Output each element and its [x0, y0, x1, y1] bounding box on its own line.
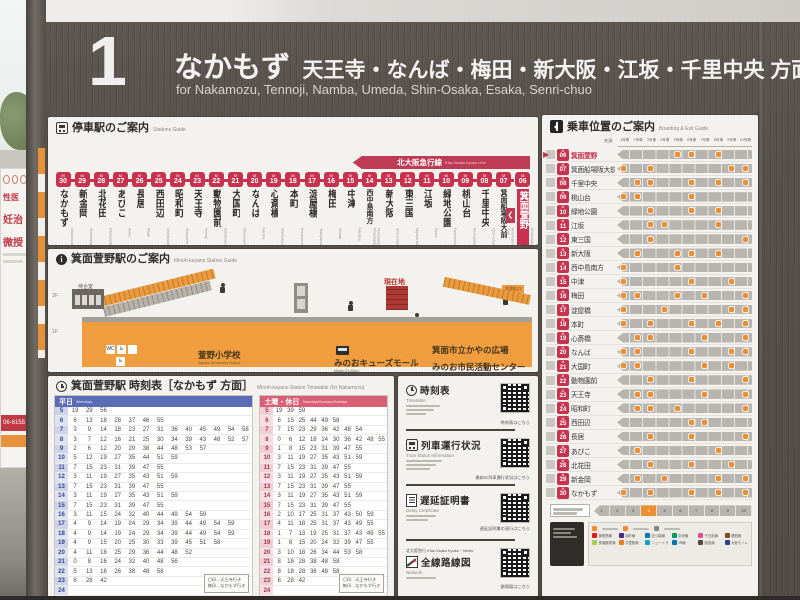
train-car-bar	[617, 305, 752, 315]
boarding-row: ▶M28北花田	[546, 458, 752, 472]
exit-marker	[621, 363, 626, 368]
exit-marker	[635, 251, 640, 256]
minute-cell: 59	[167, 492, 181, 500]
station-number-badge: M22	[557, 374, 569, 386]
ceiling-band	[0, 0, 800, 22]
boarding-row: ▶M17淀屋橋	[546, 303, 752, 317]
minute-cell: 36	[319, 426, 330, 434]
minute-cell: 42	[296, 577, 307, 585]
station-number-badge: M23	[557, 388, 569, 400]
route-station-abiko: M27あびこAbiko	[111, 172, 129, 245]
minute-cell: 58	[330, 416, 341, 424]
minute-cell: 13	[296, 530, 307, 538]
station-number-badge: M29	[75, 172, 90, 187]
minute-cell: 18	[285, 567, 296, 575]
exit-marker	[689, 349, 694, 354]
timetable-row: 918152331394755	[260, 445, 387, 454]
legend-line-阪急線: 阪急線	[698, 540, 722, 545]
station-name: なかもず	[58, 189, 68, 245]
station-number-badge: M26	[132, 172, 147, 187]
minute-cell: 24	[111, 511, 125, 519]
minute-cell: 9	[82, 530, 96, 538]
minute-cell: 36	[342, 435, 353, 443]
minute-cell: 47	[139, 501, 153, 509]
route-station-namba: M20なんばNamba	[246, 172, 264, 245]
station-number-badge: M11	[557, 219, 569, 231]
clock-icon	[56, 381, 67, 392]
minute-cell: 36	[167, 426, 181, 434]
timetable-row: 10311192735435159	[260, 454, 387, 463]
minute-cell: 52	[224, 435, 238, 443]
minute-cell: 43	[330, 454, 341, 462]
station-name: 長居	[135, 189, 145, 245]
minute-cell: 15	[285, 483, 296, 491]
legend-line-堺筋線: 堺筋線	[725, 533, 749, 538]
minute-cell: 9	[82, 520, 96, 528]
minute-cell: 1	[273, 539, 284, 547]
minute-cell: 29	[125, 445, 139, 453]
minute-cell: 26	[111, 567, 125, 575]
minute-cell: 40	[182, 426, 196, 434]
timetable-row: 1741118253137434955	[260, 520, 387, 529]
minute-cell: 49	[196, 520, 210, 528]
route-station-shin-osaka: M13新大阪Shin-Osaka	[380, 172, 398, 245]
hour-cell: 19	[260, 539, 273, 547]
minute-cell: 10	[285, 549, 296, 557]
station-name: 動物園前	[212, 189, 222, 245]
minute-cell: 9	[82, 539, 96, 547]
exit-marker	[689, 152, 694, 157]
hour-cell: 9	[260, 445, 273, 453]
minute-cell: 8	[273, 558, 284, 566]
minute-cell: 25	[139, 435, 153, 443]
hour-cell: 7	[260, 426, 273, 434]
timetable-row: 12311192735435159	[260, 473, 387, 482]
current-station-chevron: ❮	[506, 208, 515, 223]
minute-cell: 54	[182, 511, 196, 519]
minute-cell: 39	[330, 445, 341, 453]
legend-title-box	[550, 522, 584, 566]
minute-cell: 43	[139, 492, 153, 500]
boarding-row: ▶M08千里中央	[546, 176, 752, 190]
direction-car-cell: 1	[594, 505, 610, 516]
minute-cell: 35	[125, 492, 139, 500]
minute-cell: 56	[96, 407, 110, 415]
station-number-badge: M09	[458, 172, 473, 187]
station-romaji: Minoh-kayano	[530, 228, 534, 245]
train-car-bar	[617, 248, 752, 258]
route-station-nakatsu: M15中津Nakatsu	[341, 172, 359, 245]
exit-marker	[689, 420, 694, 425]
station-name: 緑地公園	[571, 206, 615, 216]
minute-cell: 39	[167, 530, 181, 538]
exit-marker	[689, 434, 694, 439]
minute-cell: 30	[139, 539, 153, 547]
minute-cell: 59	[353, 473, 364, 481]
boarding-row: ▶M09桃山台	[546, 190, 752, 204]
minute-cell: 37	[330, 511, 341, 519]
exit-marker	[702, 392, 707, 397]
train-car-bar	[617, 291, 752, 301]
hour-cell: 17	[260, 520, 273, 528]
boarding-row: ▶M13新大阪	[546, 247, 752, 261]
minute-cell: 14	[96, 530, 110, 538]
station-pictogram	[546, 390, 555, 399]
facility-icons: WC♿	[106, 345, 137, 354]
station-number-badge: M27	[113, 172, 128, 187]
minute-cell: 51	[153, 473, 167, 481]
hour-cell: 22	[260, 567, 273, 575]
poster-text-fragment: 性医	[3, 192, 28, 203]
station-name: 箕面船場阪大前	[571, 164, 615, 174]
minute-cell: 8	[285, 539, 296, 547]
minute-cell: 6	[285, 435, 296, 443]
exit-marker	[729, 166, 734, 171]
minute-cell: 3	[68, 492, 82, 500]
minute-cell: 7	[285, 530, 296, 538]
floor-label-1f: 1F	[52, 329, 58, 335]
minute-cell: 13	[82, 416, 96, 424]
boarding-row: ▶M06箕面萱野	[546, 148, 752, 162]
minute-cell: 4	[68, 549, 82, 557]
minute-cell: 34	[319, 549, 330, 557]
minute-cell: 49	[319, 416, 330, 424]
station-pictogram	[546, 446, 555, 455]
minute-cell: 3	[273, 549, 284, 557]
hour-cell: 15	[260, 501, 273, 509]
station-pictogram	[546, 305, 555, 314]
holiday-timetable: 土曜・休日Saturdays/Sundays/Holidays519395966…	[259, 395, 388, 597]
minute-cell: 39	[285, 407, 296, 415]
station-name: なんば	[571, 347, 615, 357]
minute-cell: 4	[68, 520, 82, 528]
minute-cell: 25	[308, 520, 319, 528]
route-station-nishitanabe: M25西田辺Nishitanabe	[150, 172, 168, 245]
exit-marker	[648, 392, 653, 397]
train-car-bar	[617, 460, 752, 470]
minute-cell: 48	[319, 558, 330, 566]
minute-cell: 55	[376, 435, 387, 443]
minute-cell: 19	[96, 492, 110, 500]
timetable-row: 661525444958	[260, 416, 387, 425]
elevator-icon	[294, 283, 308, 313]
station-name: 江坂	[571, 220, 615, 230]
exit-marker	[702, 293, 707, 298]
minute-cell: 48	[167, 549, 181, 557]
minute-cell: 48	[139, 567, 153, 575]
direction-car-cell: 3	[626, 505, 642, 516]
station-pictogram	[546, 192, 555, 201]
legend-line-JR線: JR線	[672, 540, 696, 545]
station-name: 動物園前	[571, 375, 615, 385]
minute-cell: 24	[111, 558, 125, 566]
station-guide-panel: i 箕面萱野駅のご案内 Minoh-kayano Station Guide 2…	[48, 249, 538, 372]
exit-marker	[729, 349, 734, 354]
station-number-badge: M09	[557, 191, 569, 203]
minute-cell: 59	[296, 407, 307, 415]
train-icon	[56, 122, 68, 134]
station-number-badge: M13	[557, 247, 569, 259]
minute-cell: 32	[125, 511, 139, 519]
station-name: 本町	[288, 189, 298, 245]
exit-marker	[689, 377, 694, 382]
minute-cell: 11	[285, 473, 296, 481]
minute-cell: 38	[308, 558, 319, 566]
car-label: 4号車	[660, 138, 669, 143]
minute-cell: 30	[153, 435, 167, 443]
legend-line-千日前線: 千日前線	[698, 533, 722, 538]
exit-marker	[621, 321, 626, 326]
timetable-row: 137152331394755	[260, 483, 387, 492]
boarding-legend: 御堂筋線谷町線四つ橋線中央線千日前線堺筋線長堀鶴見緑地線今里筋線ニュートラムJR…	[550, 522, 752, 566]
train-car-bar	[617, 234, 752, 244]
minute-cell: 39	[125, 464, 139, 472]
station-name: 天王寺	[571, 389, 615, 399]
map-icon	[406, 556, 418, 568]
station-pictogram	[546, 432, 555, 441]
boarding-row: ▶M19心斎橋	[546, 331, 752, 345]
minute-cell: 44	[139, 454, 153, 462]
exit-marker	[662, 222, 667, 227]
station-name: 西田辺	[154, 189, 164, 245]
station-name: 淀屋橋	[307, 189, 317, 245]
station-number-badge: M28	[557, 459, 569, 471]
route-station-hommachi: M18本町Hommachi	[284, 172, 302, 245]
minute-cell: 35	[319, 454, 330, 462]
exit-marker	[716, 208, 721, 213]
exit-marker	[743, 237, 748, 242]
station-pictogram	[546, 235, 555, 244]
timetable-row: 2108162432404856	[55, 558, 252, 567]
route-station-senri-chuo: M08千里中央Senri-Chuo	[475, 172, 493, 245]
exit-marker	[621, 349, 626, 354]
minute-cell: 25	[319, 530, 330, 538]
exit-marker	[621, 490, 626, 495]
timetable-row: 9261220293844485357	[55, 445, 252, 454]
station-name: 梅田	[571, 290, 615, 300]
minute-cell: 59	[167, 473, 181, 481]
toilet-icon: WC	[106, 345, 115, 354]
minute-cell: 24	[125, 520, 139, 528]
minute-cell: 15	[296, 539, 307, 547]
clock-icon	[406, 385, 417, 396]
timetable-row: 18171319253137434955	[260, 530, 387, 539]
hour-cell: 12	[260, 473, 273, 481]
station-number-badge: M24	[557, 402, 569, 414]
exit-marker	[716, 476, 721, 481]
car-label: 10号車	[740, 138, 751, 143]
boarding-row: ▶M25西田辺	[546, 416, 752, 430]
platform-scene-left: 性医 妊治 微授 06-6155	[0, 0, 46, 600]
exit-marker	[621, 166, 626, 171]
minute-cell: 11	[82, 549, 96, 557]
minute-cell: 58	[330, 558, 341, 566]
exit-marker	[648, 490, 653, 495]
station-pictogram	[546, 347, 555, 356]
exit-marker	[743, 180, 748, 185]
train-car-bar	[617, 164, 752, 174]
minute-cell: 27	[308, 473, 319, 481]
minute-cell: 59	[224, 530, 238, 538]
station-name: 西田辺	[571, 417, 615, 427]
exit-marker	[648, 180, 653, 185]
minute-cell: 53	[342, 549, 353, 557]
minute-cell: 12	[82, 454, 96, 462]
timetable-header: 土曜・休日Saturdays/Sundays/Holidays	[260, 396, 387, 407]
minute-cell: 55	[342, 501, 353, 509]
poster-logos	[3, 175, 27, 184]
timetable-row: 157152331394755	[260, 501, 387, 510]
car-label: 7号車	[701, 138, 710, 143]
hour-cell: 20	[260, 549, 273, 557]
exit-marker	[675, 251, 680, 256]
station-pictogram	[546, 460, 555, 469]
boarding-rows: ▶M06箕面萱野▶M07箕面船場阪大前▶M08千里中央▶M09桃山台▶M10緑地…	[546, 148, 752, 500]
direction-car-cell: 4	[641, 505, 657, 516]
minute-cell: 47	[330, 464, 341, 472]
minute-cell: 7	[273, 483, 284, 491]
minute-cell: 43	[196, 435, 210, 443]
minute-cell: 31	[111, 483, 125, 491]
direction-car-cell: 6	[673, 505, 689, 516]
minute-cell: 32	[330, 539, 341, 547]
timetable-header: 平日Weekdays	[55, 396, 252, 407]
exit-marker	[635, 448, 640, 453]
station-pictogram	[546, 319, 555, 328]
exit-marker	[729, 307, 734, 312]
minute-cell: 28	[296, 558, 307, 566]
exit-marker	[621, 307, 626, 312]
station-pictogram	[546, 277, 555, 286]
station-name: 桃山台	[571, 192, 615, 202]
route-station-ryokuchi-koen: M10緑地公園Ryokuchi-koen	[437, 172, 455, 245]
minute-cell: 19	[296, 492, 307, 500]
minute-cell: 31	[111, 501, 125, 509]
exit-marker	[702, 335, 707, 340]
boarding-row: ▶M29新金岡	[546, 472, 752, 486]
station-number-badge: M23	[190, 172, 205, 187]
qr-links-panel: 時刻表 Timetable 時刻表はこちら 列車運行状況 Train Statu…	[398, 376, 538, 597]
minute-cell: 37	[125, 416, 139, 424]
station-number-badge: M25	[151, 172, 166, 187]
minute-cell: 4	[273, 520, 284, 528]
exit-marker	[743, 377, 748, 382]
route-map-panel: 停車駅のご案内 Stations Guide 北大阪急行線Kita-Osaka …	[48, 117, 538, 245]
minute-cell: 11	[285, 492, 296, 500]
destination-rest: 天王寺・なんば・梅田・新大阪・江坂・千里中央 方面	[302, 59, 800, 82]
school-label: 萱野小学校Kayano Elementary School	[198, 351, 241, 365]
minute-cell: 19	[111, 530, 125, 538]
minute-cell: 1	[273, 445, 284, 453]
station-name: 箕面萱野	[517, 189, 529, 245]
minute-cell: 51	[342, 492, 353, 500]
minute-cell: 27	[111, 473, 125, 481]
route-station-minoh-kayano: ❮M06箕面萱野Minoh-kayano	[514, 172, 532, 245]
station-name: なんば	[250, 189, 260, 245]
hour-cell: 18	[55, 530, 68, 538]
minute-cell: 19	[296, 454, 307, 462]
minute-cell: 4	[68, 530, 82, 538]
route-station-yodoyabashi: M17淀屋橋Yodoyabashi	[303, 172, 321, 245]
hour-cell: 11	[55, 464, 68, 472]
minute-cell: 40	[139, 511, 153, 519]
timetable-row: 2041118252936444852	[55, 549, 252, 558]
timetable-row: 191815202432394755	[260, 539, 387, 548]
hour-cell: 6	[55, 416, 68, 424]
legend-line-長堀鶴見緑地線: 長堀鶴見緑地線	[592, 540, 616, 545]
route-station-shinsaibashi: M19心斎橋Shinsaibashi	[265, 172, 283, 245]
station-name: あびこ	[116, 189, 126, 245]
hour-cell: 21	[260, 558, 273, 566]
legend-line-今里筋線: 今里筋線	[619, 540, 643, 545]
station-name: 西中島南方	[571, 262, 615, 272]
minute-cell: 12	[296, 435, 307, 443]
minute-cell: 23	[296, 426, 307, 434]
timetable-row: 14311192735435159	[55, 492, 252, 501]
station-name: 本町	[571, 319, 615, 329]
exit-marker	[743, 293, 748, 298]
minute-cell: 52	[182, 549, 196, 557]
hour-cell: 21	[55, 558, 68, 566]
minute-cell: 4	[68, 539, 82, 547]
minute-cell: 19	[308, 530, 319, 538]
current-location-marker	[386, 286, 408, 310]
route-station-dobutsuen-mae: M22動物園前Dobutsuen-mae	[207, 172, 225, 245]
minute-cell: 18	[111, 426, 125, 434]
minute-cell: 36	[139, 549, 153, 557]
minute-cell: 37	[342, 530, 353, 538]
minute-cell: 43	[139, 473, 153, 481]
exit-marker	[635, 349, 640, 354]
exit-marker	[743, 406, 748, 411]
station-number-badge: M21	[228, 172, 243, 187]
exit-marker	[675, 152, 680, 157]
minute-cell: 49	[196, 530, 210, 538]
hour-cell: 7	[55, 426, 68, 434]
minute-cell: 8	[82, 558, 96, 566]
minute-cell: 15	[285, 416, 296, 424]
station-number-badge: M20	[557, 346, 569, 358]
minute-cell: 11	[285, 520, 296, 528]
minute-cell: 49	[365, 530, 376, 538]
waiting-room-building	[72, 289, 104, 309]
minute-cell: 59	[224, 520, 238, 528]
minute-cell: 47	[353, 539, 364, 547]
qr-card-train-status: 列車運行状況 Train Status Information 最新の列車運行状…	[398, 431, 538, 486]
route-station-showacho: M24昭和町Showacho	[169, 172, 187, 245]
station-number-badge: M26	[557, 430, 569, 442]
station-name: 心斎橋	[269, 189, 279, 245]
minute-cell: 31	[319, 520, 330, 528]
minute-cell: 53	[182, 445, 196, 453]
legend-grid: 御堂筋線谷町線四つ橋線中央線千日前線堺筋線長堀鶴見緑地線今里筋線ニュートラムJR…	[588, 522, 752, 566]
station-name: なかもず	[571, 488, 615, 498]
minute-cell: 55	[365, 520, 376, 528]
minute-cell: 44	[153, 511, 167, 519]
exit-marker	[716, 180, 721, 185]
station-pictogram	[546, 474, 555, 483]
timetable-row: 2181828384858	[260, 558, 387, 567]
minute-cell: 44	[308, 416, 319, 424]
exit-marker	[743, 490, 748, 495]
hour-cell: 19	[55, 539, 68, 547]
square-label: 箕面市立かやの広場	[432, 346, 509, 356]
minute-cell: 35	[319, 473, 330, 481]
exit-marker	[635, 180, 640, 185]
minute-cell: 35	[125, 454, 139, 462]
minute-cell: 18	[285, 558, 296, 566]
minute-cell: 55	[153, 501, 167, 509]
